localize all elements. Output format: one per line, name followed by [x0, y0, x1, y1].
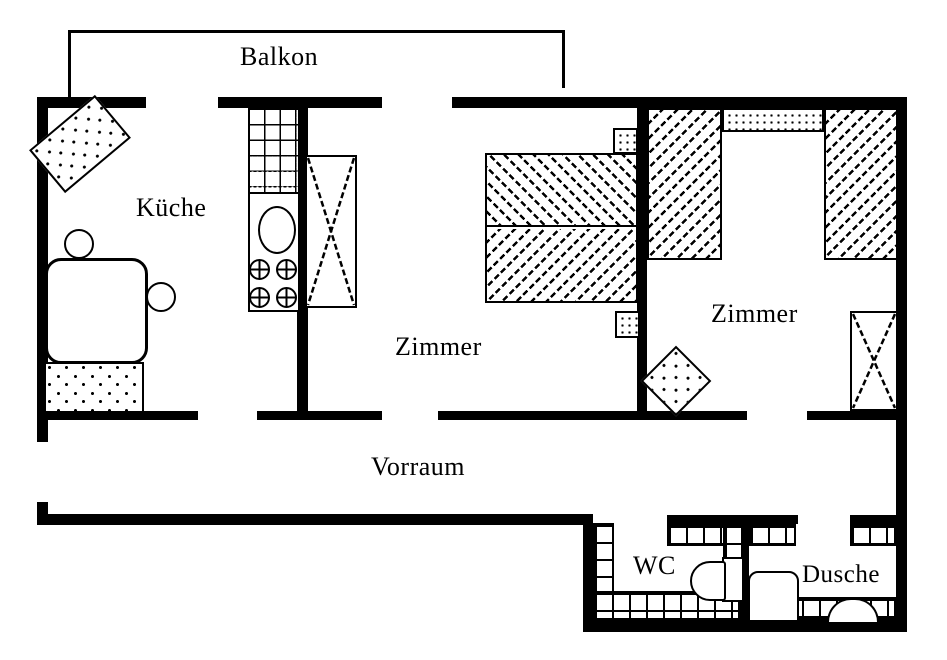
wall-vorraum-bottom [37, 514, 593, 525]
room-label-kueche: Küche [136, 195, 206, 221]
wall-top-right [452, 97, 907, 108]
toilet-icon [690, 561, 726, 601]
crossed-cabinet-icon [305, 155, 357, 308]
dining-table-icon [45, 258, 148, 364]
chair-icon [64, 229, 94, 259]
nightstand-icon [613, 128, 638, 154]
stove-burner-icon [249, 259, 270, 280]
tile-strip-icon [749, 524, 796, 546]
dotted-shelf-icon [722, 108, 824, 132]
room-label-dusche: Dusche [802, 562, 880, 587]
balcony-outline-icon [68, 30, 71, 99]
double-bed-icon [485, 153, 638, 303]
balcony-outline-icon [68, 30, 565, 33]
bed-top-half [487, 155, 636, 227]
crossed-cabinet-icon [850, 311, 898, 411]
nightstand-icon [615, 311, 640, 338]
room-label-balkon: Balkon [240, 44, 318, 70]
wall-dusche-top [850, 515, 907, 524]
tile-strip-icon [850, 524, 896, 546]
balcony-outline-icon [562, 30, 565, 88]
wall-right-bottom [807, 411, 907, 420]
floor-plan: Balkon Küche Zimmer Zimmer Vorraum WC Du… [0, 0, 947, 660]
x-mark-icon [307, 157, 355, 306]
area-rug-icon [641, 346, 712, 417]
wall-middle-bottom-a [257, 411, 382, 420]
stove-burner-icon [276, 259, 297, 280]
wall-middle-bottom-b [438, 411, 747, 420]
chair-icon [146, 282, 176, 312]
room-label-vorraum: Vorraum [371, 454, 465, 480]
sink-icon [258, 206, 296, 254]
wall-rooms-divider [637, 108, 647, 420]
hatched-closet-icon [824, 108, 898, 260]
stove-burner-icon [249, 287, 270, 308]
wall-top-middle [218, 97, 382, 108]
wall-wc-left [583, 514, 593, 627]
room-label-zimmer-rechts: Zimmer [711, 301, 798, 327]
counter-divider-line [250, 192, 298, 194]
room-label-zimmer-mitte: Zimmer [395, 334, 482, 360]
tile-strip-icon [593, 523, 614, 593]
area-rug-icon [44, 362, 144, 413]
x-mark-icon [852, 313, 896, 409]
room-label-wc: WC [633, 553, 676, 579]
stove-burner-icon [276, 287, 297, 308]
bed-bottom-half [487, 229, 636, 301]
wall-vorraum-endcap [37, 502, 48, 525]
wall-wc-top [667, 515, 798, 524]
shower-tray-icon [748, 571, 799, 622]
hatched-closet-icon [647, 108, 722, 260]
counter-drainer-grid-icon [250, 110, 298, 192]
